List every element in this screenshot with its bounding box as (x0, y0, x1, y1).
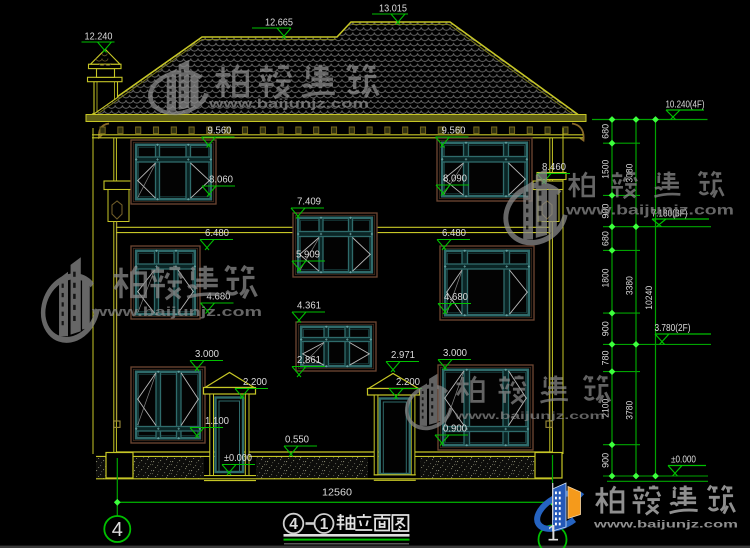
svg-text:6.480: 6.480 (205, 228, 229, 239)
svg-text:2.861: 2.861 (297, 355, 321, 366)
svg-text:www.baijunjz.com: www.baijunjz.com (592, 519, 738, 531)
svg-text:3.000: 3.000 (443, 348, 467, 359)
svg-text:13.015: 13.015 (379, 4, 407, 15)
svg-text:6.480: 6.480 (442, 228, 466, 239)
svg-text:680: 680 (601, 231, 612, 246)
svg-text:680: 680 (601, 124, 612, 139)
svg-text:4.680: 4.680 (444, 292, 468, 303)
svg-text:www.baijunjz.com: www.baijunjz.com (90, 304, 262, 319)
svg-text:780: 780 (601, 351, 612, 366)
svg-text:4: 4 (289, 516, 298, 533)
svg-text:1500: 1500 (601, 160, 612, 179)
svg-text:±0.000: ±0.000 (671, 455, 696, 466)
svg-text:12.665: 12.665 (265, 18, 293, 29)
svg-text:2.200: 2.200 (243, 377, 267, 388)
svg-text:3780: 3780 (625, 401, 636, 420)
svg-text:10240: 10240 (644, 286, 655, 310)
svg-text:12560: 12560 (322, 487, 352, 499)
svg-text:8.090: 8.090 (443, 174, 467, 185)
svg-text:12.240: 12.240 (85, 32, 113, 43)
svg-text:4.361: 4.361 (297, 301, 321, 312)
svg-text:10.240(4F): 10.240(4F) (666, 100, 705, 111)
svg-text:9.560: 9.560 (442, 126, 466, 137)
svg-text:4: 4 (112, 519, 123, 541)
svg-text:www.baijunjz.com: www.baijunjz.com (565, 203, 734, 218)
svg-text:www.baijunjz.com: www.baijunjz.com (453, 410, 605, 422)
svg-text:900: 900 (601, 453, 612, 468)
svg-text:9.560: 9.560 (208, 126, 232, 137)
svg-text:3380: 3380 (625, 276, 636, 295)
svg-text:www.baijunjz.com: www.baijunjz.com (207, 99, 369, 111)
svg-text:1: 1 (320, 516, 329, 533)
svg-text:2.971: 2.971 (391, 350, 415, 361)
svg-text:1: 1 (547, 521, 559, 546)
svg-text:2.200: 2.200 (396, 377, 420, 388)
svg-text:±0.000: ±0.000 (224, 453, 252, 464)
svg-text:0.550: 0.550 (285, 435, 309, 446)
svg-text:5.909: 5.909 (296, 250, 320, 261)
svg-text:0.900: 0.900 (443, 424, 467, 435)
svg-text:3.780(2F): 3.780(2F) (655, 323, 691, 334)
svg-text:8.060: 8.060 (209, 175, 233, 186)
svg-text:1800: 1800 (601, 269, 612, 288)
svg-text:1.100: 1.100 (205, 416, 229, 427)
svg-text:900: 900 (601, 321, 612, 336)
svg-text:3.000: 3.000 (195, 349, 219, 360)
svg-text:7.409: 7.409 (297, 197, 321, 208)
